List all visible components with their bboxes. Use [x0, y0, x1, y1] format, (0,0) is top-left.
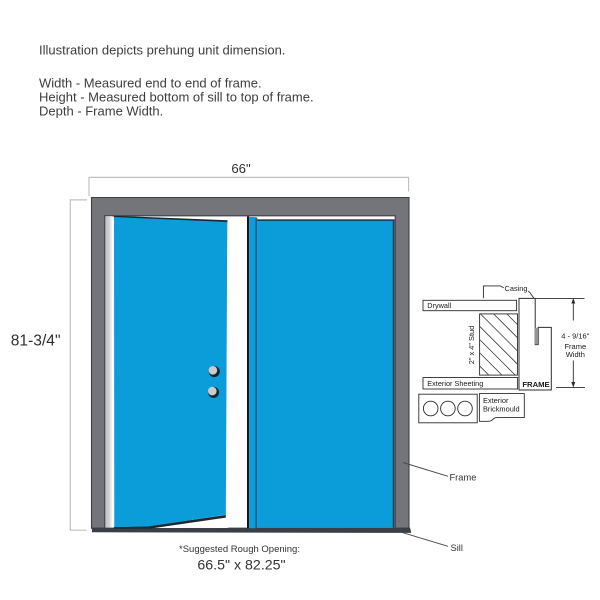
svg-text:Frame: Frame	[450, 473, 477, 483]
svg-text:FRAME: FRAME	[522, 380, 549, 389]
svg-text:Sill: Sill	[451, 543, 463, 553]
svg-text:Brickmould: Brickmould	[483, 405, 520, 414]
svg-text:66.5" x 82.25": 66.5" x 82.25"	[197, 557, 285, 573]
svg-text:*Suggested Rough Opening:: *Suggested Rough Opening:	[179, 544, 300, 555]
svg-text:Casing: Casing	[505, 284, 528, 293]
svg-text:Drywall: Drywall	[427, 301, 451, 310]
svg-text:81-3/4": 81-3/4"	[11, 333, 61, 350]
svg-text:Height - Measured bottom of si: Height - Measured bottom of sill to top …	[39, 90, 314, 105]
svg-text:Illustration depicts prehung u: Illustration depicts prehung unit dimens…	[39, 43, 285, 58]
svg-text:Width - Measured end to end of: Width - Measured end to end of frame.	[39, 76, 262, 91]
svg-text:Width: Width	[566, 350, 585, 359]
svg-text:Depth - Frame Width.: Depth - Frame Width.	[39, 104, 163, 119]
svg-text:Exterior Sheeting: Exterior Sheeting	[427, 379, 483, 388]
svg-text:4 - 9/16": 4 - 9/16"	[561, 332, 589, 341]
svg-text:66": 66"	[231, 161, 251, 176]
svg-text:2" x 4" Stud: 2" x 4" Stud	[467, 326, 476, 365]
